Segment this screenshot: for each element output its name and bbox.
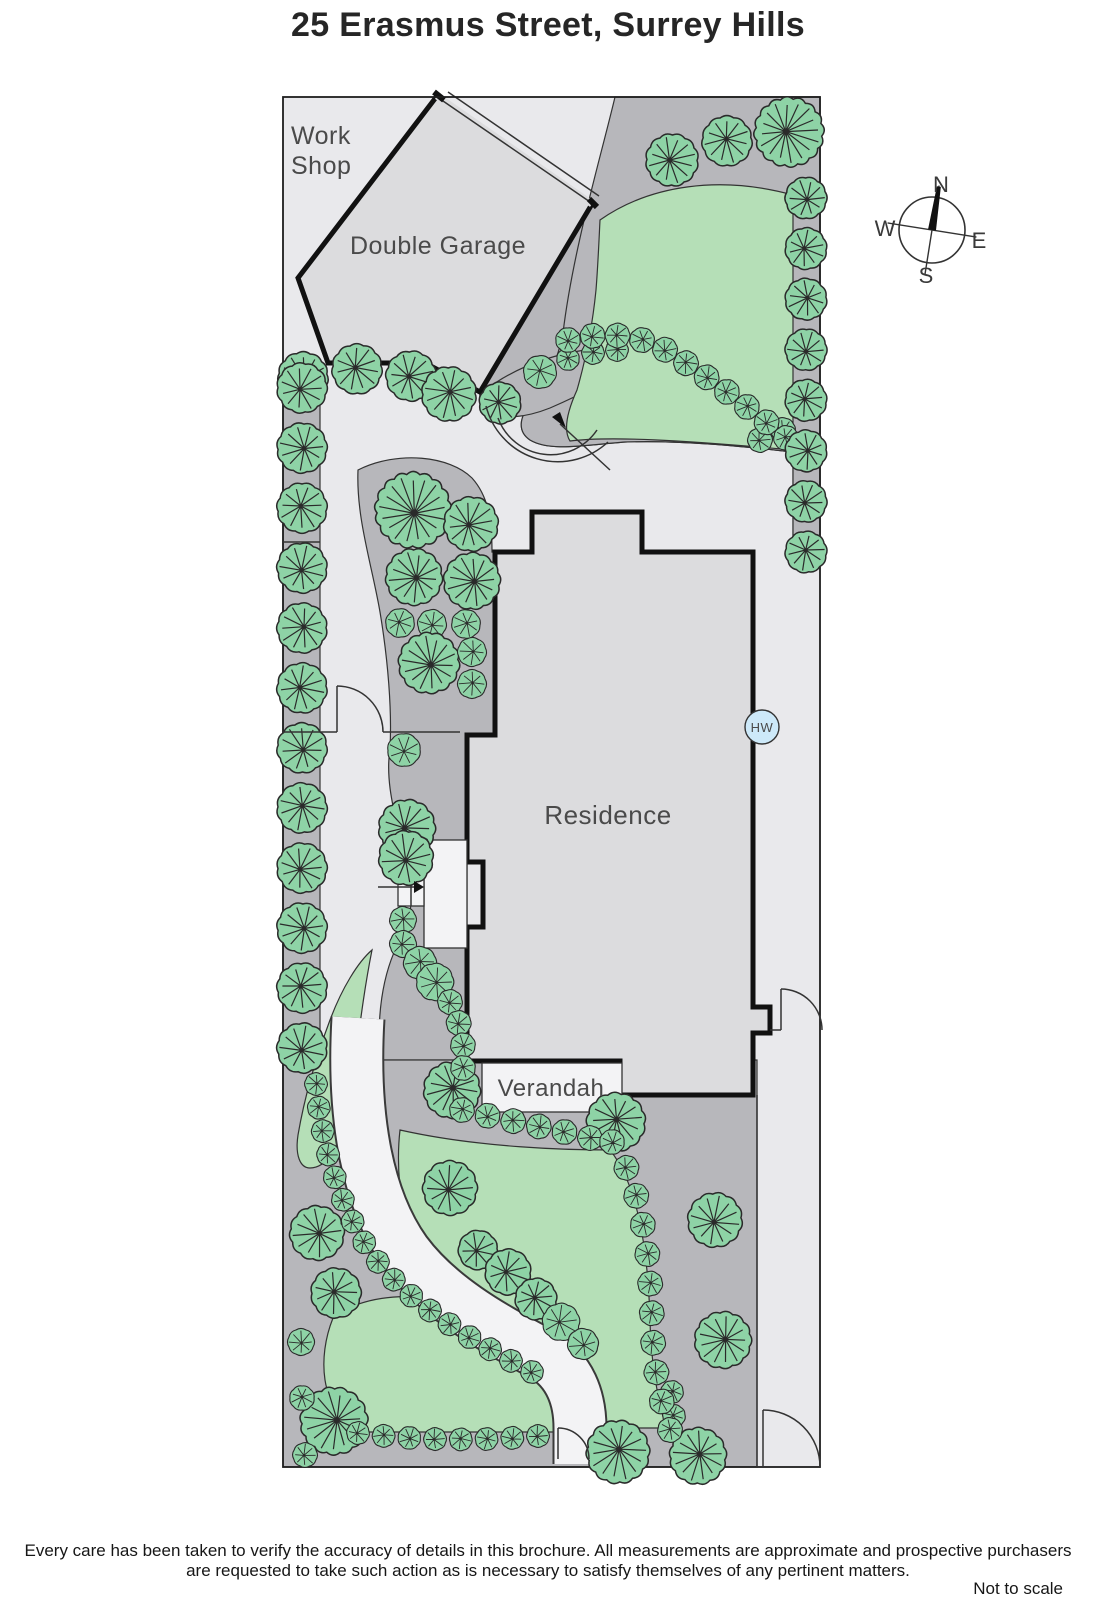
tree xyxy=(457,669,486,698)
tree xyxy=(630,328,655,353)
tree xyxy=(438,1313,461,1336)
tree xyxy=(635,1242,660,1267)
tree xyxy=(715,380,739,404)
tree xyxy=(580,323,605,348)
tree xyxy=(785,228,827,270)
tree xyxy=(332,344,383,394)
tree xyxy=(277,483,328,533)
tree xyxy=(277,843,327,893)
tree xyxy=(458,1326,480,1348)
tree xyxy=(388,734,421,767)
tree xyxy=(785,278,827,320)
tree xyxy=(400,1285,422,1307)
tree xyxy=(451,1056,476,1081)
tree xyxy=(446,1011,471,1036)
disclaimer-line2: are requested to take such action as is … xyxy=(186,1561,910,1580)
tree xyxy=(451,1033,476,1058)
tree xyxy=(631,1212,656,1237)
tree xyxy=(347,1422,370,1445)
tree xyxy=(754,97,825,168)
tree xyxy=(289,1205,344,1260)
tree xyxy=(277,723,328,773)
tree xyxy=(341,1210,364,1233)
tree xyxy=(449,1428,472,1451)
tree xyxy=(332,1188,355,1211)
tree xyxy=(567,1328,598,1359)
verandah-label: Verandah xyxy=(498,1075,605,1102)
compass-w: W xyxy=(875,216,896,241)
tree xyxy=(307,1096,330,1119)
tree xyxy=(389,906,416,933)
tree xyxy=(324,1166,347,1189)
compass-e: E xyxy=(972,228,987,253)
residence-label: Residence xyxy=(544,800,671,830)
tree xyxy=(694,365,719,390)
tree xyxy=(398,1427,420,1449)
tree xyxy=(475,1103,500,1128)
tree xyxy=(317,1143,340,1166)
tree xyxy=(614,1155,639,1180)
tree xyxy=(674,351,699,376)
tree xyxy=(646,134,698,186)
tree xyxy=(653,337,678,362)
tree xyxy=(605,323,630,348)
tree xyxy=(521,1361,544,1384)
tree xyxy=(624,1183,649,1208)
tree xyxy=(386,609,415,638)
tree xyxy=(650,1389,675,1414)
tree xyxy=(499,1349,522,1372)
tree xyxy=(524,356,557,389)
workshop-label-line1: Work xyxy=(291,122,351,150)
tree xyxy=(353,1231,376,1253)
tree xyxy=(552,1120,576,1144)
compass-rose: N W E S xyxy=(875,172,987,288)
tree xyxy=(586,1420,650,1483)
tree xyxy=(526,1114,551,1139)
tree xyxy=(479,1338,502,1361)
compass-s: S xyxy=(919,263,934,288)
tree xyxy=(556,328,580,352)
workshop-label-line2: Shop xyxy=(291,152,351,180)
tree xyxy=(422,367,476,421)
tree xyxy=(366,1250,389,1273)
footer: Every care has been taken to verify the … xyxy=(25,1541,1072,1598)
tree xyxy=(638,1271,663,1296)
tree xyxy=(311,1120,334,1143)
tree xyxy=(641,1330,666,1355)
garage-label: Double Garage xyxy=(350,232,526,260)
tree xyxy=(600,1130,624,1154)
tree xyxy=(382,1268,405,1291)
scale-note: Not to scale xyxy=(973,1579,1063,1598)
tree xyxy=(290,1386,314,1410)
tree xyxy=(375,471,452,548)
tree xyxy=(419,1299,442,1322)
hw-label: HW xyxy=(751,720,774,735)
tree xyxy=(379,831,434,886)
tree xyxy=(452,610,481,639)
tree xyxy=(311,1268,361,1319)
tree xyxy=(479,382,521,424)
page-title: 25 Erasmus Street, Surrey Hills xyxy=(291,6,805,44)
tree xyxy=(658,1418,683,1443)
tree xyxy=(644,1360,669,1385)
compass-n: N xyxy=(933,172,949,197)
disclaimer-line1: Every care has been taken to verify the … xyxy=(25,1541,1072,1560)
tree xyxy=(287,1328,314,1355)
tree xyxy=(785,329,827,370)
tree xyxy=(785,177,827,218)
tree xyxy=(305,1073,328,1096)
tree xyxy=(444,497,499,552)
tree xyxy=(475,1428,498,1451)
tree xyxy=(293,1443,318,1468)
tree xyxy=(688,1193,743,1248)
tree xyxy=(501,1109,526,1134)
tree xyxy=(785,430,826,472)
tree xyxy=(457,637,486,666)
tree xyxy=(578,1126,603,1151)
tree xyxy=(785,379,827,421)
tree xyxy=(501,1426,524,1449)
tree xyxy=(702,116,753,166)
tree xyxy=(424,1428,447,1451)
tree xyxy=(277,363,327,414)
tree xyxy=(639,1301,664,1326)
tree xyxy=(450,1098,475,1123)
tree xyxy=(372,1424,395,1447)
tree xyxy=(785,481,827,522)
hw-marker: HW xyxy=(745,710,779,744)
tree xyxy=(785,531,827,573)
tree xyxy=(277,603,327,654)
site-plan-svg: 25 Erasmus Street, Surrey Hills xyxy=(0,0,1097,1600)
tree xyxy=(527,1425,550,1448)
